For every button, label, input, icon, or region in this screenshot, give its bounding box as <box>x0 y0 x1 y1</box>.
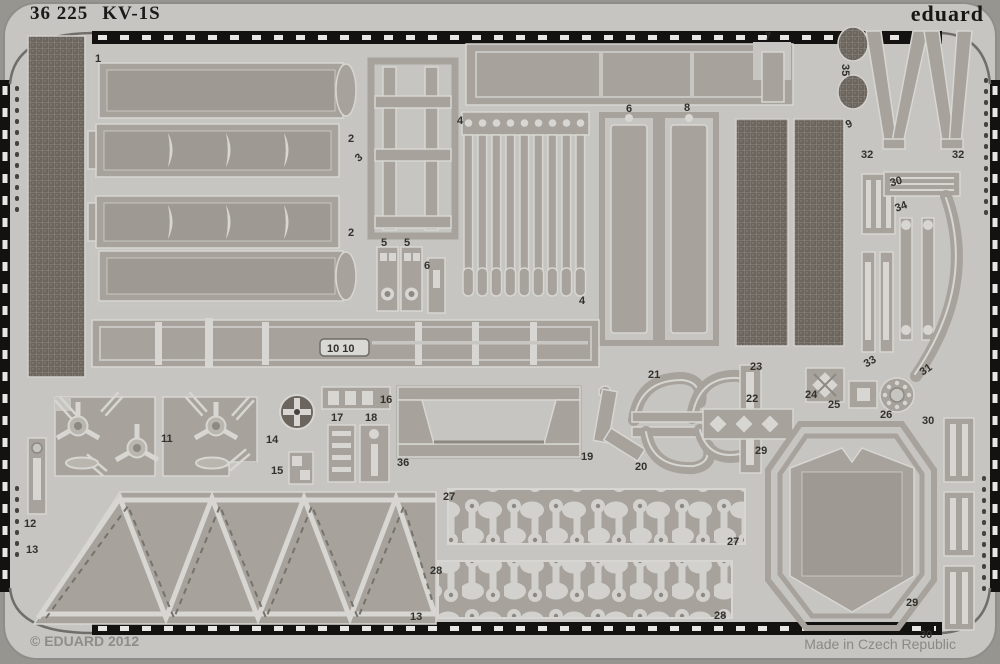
part-label: 10 10 <box>327 343 355 355</box>
part-label: 5 <box>404 237 410 249</box>
part-label: 27 <box>727 536 739 548</box>
part-9-mesh-panels <box>736 119 844 346</box>
part-label: 4 <box>457 115 464 127</box>
part-label: 36 <box>397 457 409 469</box>
part-label: 30 <box>922 415 934 427</box>
part-18-bracket <box>360 425 389 482</box>
part-label: 6 <box>424 260 430 272</box>
part-label: 35 <box>839 64 851 76</box>
part-17-ladder <box>328 425 355 482</box>
part-2-fender-boards <box>88 59 356 305</box>
part-label: 4 <box>579 295 586 307</box>
part-7-top-bar <box>466 42 793 105</box>
part-label: 21 <box>648 369 660 381</box>
part-14-wheel <box>280 395 314 429</box>
part-label: 25 <box>828 399 840 411</box>
part-label: 32 <box>861 149 873 161</box>
part-5-buckles <box>377 247 422 311</box>
part-label: 18 <box>365 412 377 424</box>
part-label: 2 <box>348 227 354 239</box>
part-26-ring-gear <box>880 378 914 412</box>
part-28-clamp-strip <box>438 561 732 618</box>
part-label: 19 <box>581 451 593 463</box>
film-edge-top <box>92 31 942 44</box>
part-label: 33 <box>862 354 879 371</box>
part-6-small-plate <box>428 258 445 313</box>
part-label: 6 <box>626 103 632 115</box>
part-11-cleat-plates <box>55 392 257 476</box>
part-label: 12 <box>24 518 36 530</box>
product-photo: 1 2 3 2 5 5 6 4 4 7 6 8 35 9 32 32 30 34… <box>0 0 1000 664</box>
part-label: 13 <box>410 611 422 623</box>
part-label: 2 <box>348 133 354 145</box>
part-label: 9 <box>844 118 855 131</box>
part-label: 32 <box>952 149 964 161</box>
part-4-slat-comb <box>462 112 589 296</box>
part-1-mesh-strip <box>28 36 85 377</box>
part-label: 29 <box>755 445 767 457</box>
part-6-8-panels <box>602 114 716 343</box>
film-edge-left <box>0 80 10 592</box>
part-30-ladder-strips <box>944 418 974 630</box>
part-label: 28 <box>430 565 442 577</box>
part-label: 20 <box>635 461 647 473</box>
part-label: 7 <box>765 31 771 43</box>
part-label: 15 <box>271 465 283 477</box>
part-25-square-ring <box>849 381 877 408</box>
part-label: 16 <box>380 394 392 406</box>
part-label: 3 <box>353 151 365 164</box>
part-label: 8 <box>684 102 690 114</box>
part-label: 34 <box>893 199 909 215</box>
part-label: 13 <box>26 544 38 556</box>
made-in-text: Made in Czech Republic <box>804 636 956 652</box>
sheet-title: 36 225KV-1S <box>30 3 161 25</box>
part-36-tray <box>398 387 580 457</box>
part-13-truss <box>34 492 436 624</box>
part-label: 29 <box>906 597 918 609</box>
fret-artwork: 1 2 3 2 5 5 6 4 4 7 6 8 35 9 32 32 30 34… <box>0 0 1000 664</box>
part-15-step-bracket <box>289 452 313 484</box>
part-3-frame <box>371 61 455 236</box>
part-33-strips <box>862 252 893 352</box>
part-label: 26 <box>880 409 892 421</box>
film-edge-right <box>990 80 1000 592</box>
part-label: 23 <box>750 361 762 373</box>
part-label: 1 <box>95 53 101 65</box>
part-label: 22 <box>746 393 758 405</box>
part-12-latch <box>28 438 46 514</box>
part-label: 24 <box>805 389 818 401</box>
part-32-forks <box>866 31 972 149</box>
part-label: 17 <box>331 412 343 424</box>
copyright-text: © EDUARD 2012 <box>30 633 139 649</box>
part-label: 11 <box>161 433 173 445</box>
part-27-clamp-strip <box>448 489 745 544</box>
brand-logo: eduard <box>911 1 984 27</box>
part-label: 5 <box>381 237 387 249</box>
part-label: 28 <box>714 610 726 622</box>
kit-name: KV-1S <box>102 3 160 24</box>
part-label: 14 <box>266 434 279 446</box>
part-34-strips <box>900 218 934 340</box>
catalog-number: 36 225 <box>30 3 88 24</box>
part-label: 27 <box>443 491 455 503</box>
